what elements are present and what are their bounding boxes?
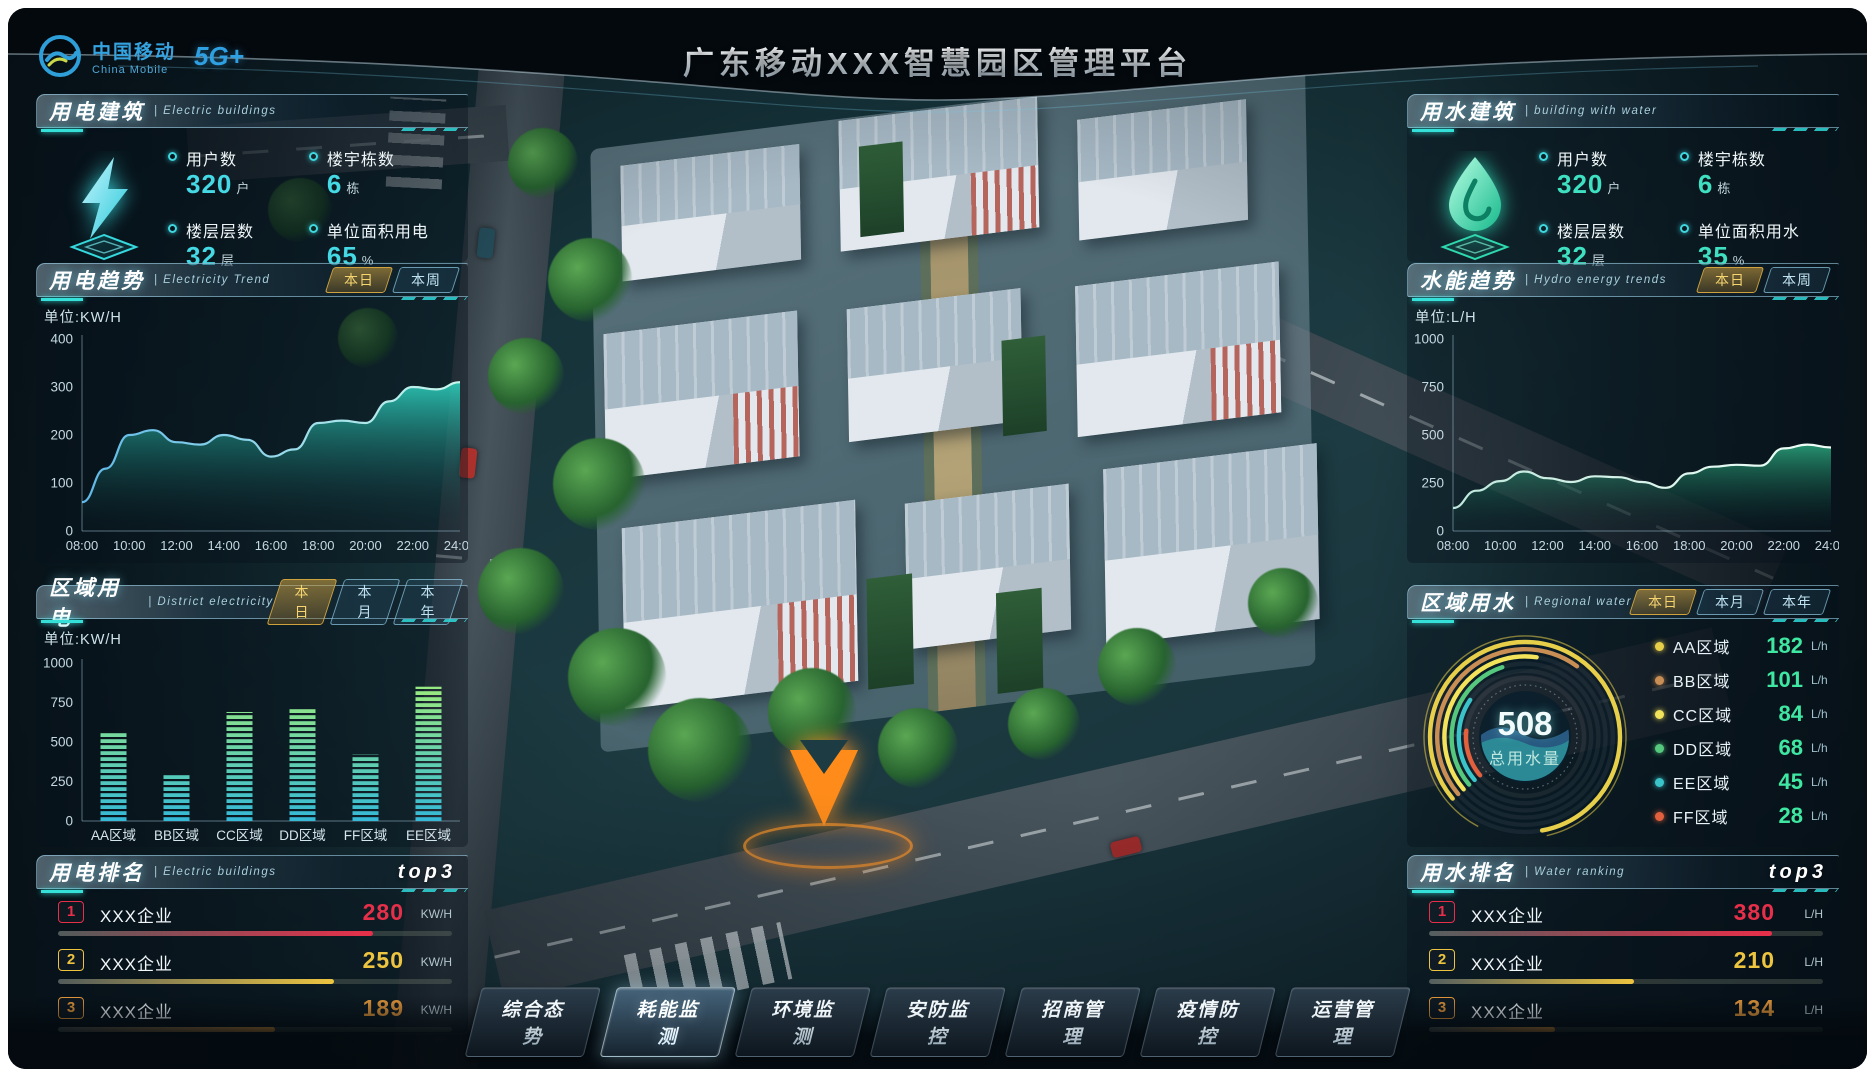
- legend-name: EE区域: [1673, 770, 1751, 794]
- panel-regional-water: 区域用水 | Regional water 本日本月本年 508 总用水量 AA…: [1407, 585, 1839, 847]
- svg-text:200: 200: [50, 428, 73, 443]
- svg-text:10:00: 10:00: [1484, 538, 1517, 553]
- panel-header: 区域用电 | District electricity 本日本月本年: [36, 585, 468, 619]
- panel-header: 区域用水 | Regional water 本日本月本年: [1407, 585, 1839, 619]
- legend-dot-icon: [1655, 778, 1664, 787]
- svg-text:12:00: 12:00: [160, 538, 193, 553]
- panel-header: 用电建筑 | Electric buildings: [36, 94, 468, 128]
- total-water-label: 总用水量: [1465, 745, 1585, 769]
- panel-header: 用电趋势 | Electricity Trend 本日本周: [36, 263, 468, 297]
- stat-grid: 用户数 320户 楼宇栋数 6栋 楼层层数 32层 单位面积用水 35%: [1539, 142, 1835, 272]
- time-range-tab[interactable]: 本月: [329, 579, 400, 625]
- donut-center: 508 总用水量: [1465, 705, 1585, 769]
- top3-badge: top3: [398, 861, 456, 884]
- panel-electric-ranking: 用电排名 | Electric buildings top3 1 XXX企业 2…: [36, 855, 468, 1033]
- svg-text:CC区域: CC区域: [216, 828, 263, 843]
- legend-dot-icon: [1655, 744, 1664, 753]
- svg-text:16:00: 16:00: [1626, 538, 1659, 553]
- panel-subtitle: | District electricity: [148, 596, 273, 608]
- ranking-row: 3 XXX企业 189 KW/H: [48, 997, 456, 1039]
- rank-value: 134: [1734, 995, 1775, 1022]
- legend-name: FF区域: [1673, 804, 1751, 828]
- nav-item[interactable]: 安防监控: [869, 987, 1006, 1057]
- legend-value: 84: [1751, 701, 1803, 727]
- rank-badge: 3: [1429, 997, 1455, 1019]
- stat-item: 楼宇栋数 6栋: [309, 146, 464, 200]
- ranking-list: 1 XXX企业 280 KW/H 2 XXX企业 250 KW/H 3 XXX: [36, 889, 468, 1051]
- rank-progress-track: [1429, 979, 1823, 984]
- svg-text:08:00: 08:00: [1437, 538, 1470, 553]
- nav-item[interactable]: 环境监测: [734, 987, 871, 1057]
- panel-header: 用电排名 | Electric buildings top3: [36, 855, 468, 889]
- svg-text:AA区域: AA区域: [91, 828, 136, 843]
- bullet-icon: [1539, 224, 1548, 233]
- svg-text:750: 750: [50, 695, 73, 710]
- svg-text:1000: 1000: [1414, 332, 1444, 347]
- svg-text:1000: 1000: [43, 656, 73, 671]
- legend-item: BB区域 101 L/h: [1655, 663, 1833, 697]
- stat-value: 6栋: [1698, 170, 1766, 200]
- time-range-tabs: 本日本周: [1700, 267, 1827, 293]
- rank-progress-track: [58, 931, 452, 936]
- bullet-icon: [1680, 152, 1689, 161]
- rank-value: 189: [363, 995, 404, 1022]
- bullet-icon: [1539, 152, 1548, 161]
- panel-subtitle: | Regional water: [1525, 596, 1632, 608]
- time-range-tabs: 本日本月本年: [1633, 589, 1827, 615]
- stat-grid: 用户数 320户 楼宇栋数 6栋 楼层层数 32层 单位面积用电 65%: [168, 142, 464, 272]
- legend-item: EE区域 45 L/h: [1655, 765, 1833, 799]
- stat-label: 用户数: [1557, 146, 1621, 170]
- time-range-tab[interactable]: 本周: [392, 267, 460, 293]
- panel-subtitle: | building with water: [1525, 105, 1657, 117]
- water-usage-legend: AA区域 182 L/h BB区域 101 L/h CC区域 84 L/h DD…: [1655, 629, 1833, 833]
- panel-subtitle: | Electric buildings: [154, 866, 276, 878]
- rank-badge: 1: [1429, 901, 1455, 923]
- svg-text:300: 300: [50, 380, 73, 395]
- panel-header: 水能趋势 | Hydro energy trends 本日本周: [1407, 263, 1839, 297]
- ranking-list: 1 XXX企业 380 L/H 2 XXX企业 210 L/H 3 XXX企业: [1407, 889, 1839, 1051]
- company-name: XXX企业: [1471, 902, 1544, 927]
- total-water-value: 508: [1465, 705, 1585, 743]
- legend-value: 45: [1751, 769, 1803, 795]
- svg-text:08:00: 08:00: [66, 538, 99, 553]
- svg-text:24:00: 24:00: [444, 538, 468, 553]
- rank-unit: KW/H: [421, 955, 452, 969]
- panel-electric-trend: 用电趋势 | Electricity Trend 本日本周 单位:KW/H 01…: [36, 263, 468, 563]
- rank-progress-track: [1429, 1027, 1823, 1032]
- water-trend-chart: 0250500750100008:0010:0012:0014:0016:001…: [1407, 327, 1839, 564]
- unit-label: 单位:KW/H: [44, 306, 468, 327]
- rank-progress-fill: [58, 1027, 275, 1032]
- stat-item: 用户数 320户: [168, 146, 303, 200]
- stat-value: 320户: [1557, 170, 1621, 200]
- district-electricity-chart: 02505007501000AA区域BB区域CC区域DD区域FF区域EE区域: [36, 649, 468, 854]
- svg-text:12:00: 12:00: [1531, 538, 1564, 553]
- svg-text:750: 750: [1421, 380, 1444, 395]
- china-mobile-logo: 中国移动 China Mobile 5G+: [38, 34, 244, 78]
- ranking-row: 2 XXX企业 210 L/H: [1419, 949, 1827, 991]
- legend-unit: L/h: [1811, 741, 1828, 755]
- svg-text:14:00: 14:00: [207, 538, 240, 553]
- rank-progress-track: [1429, 931, 1823, 936]
- stat-value: 320户: [186, 170, 250, 200]
- panel-subtitle: | Electric buildings: [154, 105, 276, 117]
- svg-text:16:00: 16:00: [255, 538, 288, 553]
- legend-name: AA区域: [1673, 634, 1751, 658]
- nav-item[interactable]: 招商管理: [1004, 987, 1141, 1057]
- time-range-tab[interactable]: 本年: [1763, 589, 1831, 615]
- panel-title: 区域用电: [49, 572, 139, 632]
- water-drop-icon: [1411, 142, 1539, 272]
- svg-text:400: 400: [50, 332, 73, 347]
- rank-value: 210: [1734, 947, 1775, 974]
- legend-value: 182: [1751, 633, 1803, 659]
- svg-text:FF区域: FF区域: [344, 828, 388, 843]
- svg-text:0: 0: [65, 524, 73, 539]
- rank-value: 380: [1734, 899, 1775, 926]
- company-name: XXX企业: [100, 998, 173, 1023]
- svg-text:500: 500: [1421, 428, 1444, 443]
- rank-progress-fill: [1429, 979, 1634, 984]
- stat-label: 楼宇栋数: [1698, 146, 1766, 170]
- svg-text:14:00: 14:00: [1578, 538, 1611, 553]
- svg-text:500: 500: [50, 735, 73, 750]
- legend-unit: L/h: [1811, 639, 1828, 653]
- rank-progress-fill: [58, 979, 334, 984]
- time-range-tab[interactable]: 本月: [1696, 589, 1764, 615]
- legend-name: DD区域: [1673, 736, 1751, 760]
- panel-title: 用水建筑: [1420, 96, 1516, 126]
- rank-badge: 2: [1429, 949, 1455, 971]
- nav-item[interactable]: 综合态势: [464, 987, 601, 1057]
- svg-text:BB区域: BB区域: [154, 828, 199, 843]
- time-range-tab[interactable]: 本日: [1629, 589, 1697, 615]
- china-mobile-logo-icon: [38, 34, 82, 78]
- ranking-row: 1 XXX企业 280 KW/H: [48, 901, 456, 943]
- rank-badge: 3: [58, 997, 84, 1019]
- panel-title: 用水排名: [1420, 857, 1516, 887]
- svg-text:18:00: 18:00: [302, 538, 335, 553]
- legend-dot-icon: [1655, 812, 1664, 821]
- rank-progress-fill: [1429, 931, 1772, 936]
- panel-title: 水能趋势: [1420, 265, 1516, 295]
- rank-unit: L/H: [1804, 907, 1823, 921]
- company-name: XXX企业: [100, 902, 173, 927]
- rank-badge: 1: [58, 901, 84, 923]
- time-range-tab[interactable]: 本年: [392, 579, 463, 625]
- svg-text:18:00: 18:00: [1673, 538, 1706, 553]
- dashboard-root: 中国移动 China Mobile 5G+ 广东移动XXX智慧园区管理平台 用电…: [8, 8, 1867, 1069]
- legend-unit: L/h: [1811, 775, 1828, 789]
- nav-item[interactable]: 运营管理: [1274, 987, 1411, 1057]
- svg-text:250: 250: [50, 774, 73, 789]
- svg-text:250: 250: [1421, 476, 1444, 491]
- svg-text:EE区域: EE区域: [406, 828, 451, 843]
- svg-text:20:00: 20:00: [349, 538, 382, 553]
- logo-text-en: China Mobile: [92, 64, 176, 76]
- top3-badge: top3: [1769, 861, 1827, 884]
- svg-text:24:00: 24:00: [1815, 538, 1839, 553]
- ranking-row: 3 XXX企业 134 L/H: [1419, 997, 1827, 1039]
- rank-progress-track: [58, 1027, 452, 1032]
- stat-label: 楼层层数: [186, 218, 254, 242]
- stat-label: 单位面积用电: [327, 218, 429, 242]
- bullet-icon: [1680, 224, 1689, 233]
- company-name: XXX企业: [1471, 998, 1544, 1023]
- stat-value: 6栋: [327, 170, 395, 200]
- unit-label: 单位:L/H: [1415, 306, 1839, 327]
- panel-subtitle: | Electricity Trend: [154, 274, 270, 286]
- panel-title: 用电趋势: [49, 265, 145, 295]
- bullet-icon: [168, 152, 177, 161]
- panel-header: 用水排名 | Water ranking top3: [1407, 855, 1839, 889]
- stat-item: 用户数 320户: [1539, 146, 1674, 200]
- legend-unit: L/h: [1811, 707, 1828, 721]
- rank-progress-fill: [58, 931, 373, 936]
- legend-unit: L/h: [1811, 809, 1828, 823]
- legend-dot-icon: [1655, 642, 1664, 651]
- panel-title: 区域用水: [1420, 587, 1516, 617]
- svg-text:0: 0: [1436, 524, 1444, 539]
- company-name: XXX企业: [1471, 950, 1544, 975]
- svg-text:100: 100: [50, 476, 73, 491]
- svg-text:22:00: 22:00: [396, 538, 429, 553]
- rank-badge: 2: [58, 949, 84, 971]
- time-range-tab[interactable]: 本周: [1763, 267, 1831, 293]
- legend-unit: L/h: [1811, 673, 1828, 687]
- panel-water-trend: 水能趋势 | Hydro energy trends 本日本周 单位:L/H 0…: [1407, 263, 1839, 563]
- legend-name: CC区域: [1673, 702, 1751, 726]
- nav-item[interactable]: 疫情防控: [1139, 987, 1276, 1057]
- ranking-row: 2 XXX企业 250 KW/H: [48, 949, 456, 991]
- legend-dot-icon: [1655, 710, 1664, 719]
- time-range-tab[interactable]: 本日: [266, 579, 337, 625]
- rank-unit: KW/H: [421, 1003, 452, 1017]
- time-range-tab[interactable]: 本日: [1696, 267, 1764, 293]
- panel-title: 用电建筑: [49, 96, 145, 126]
- panel-subtitle: | Hydro energy trends: [1525, 274, 1667, 286]
- legend-item: AA区域 182 L/h: [1655, 629, 1833, 663]
- panel-water-ranking: 用水排名 | Water ranking top3 1 XXX企业 380 L/…: [1407, 855, 1839, 1033]
- stat-label: 用户数: [186, 146, 250, 170]
- legend-item: CC区域 84 L/h: [1655, 697, 1833, 731]
- svg-text:22:00: 22:00: [1767, 538, 1800, 553]
- rank-progress-track: [58, 979, 452, 984]
- page-title: 广东移动XXX智慧园区管理平台: [683, 38, 1192, 83]
- stat-label: 单位面积用水: [1698, 218, 1800, 242]
- bullet-icon: [309, 224, 318, 233]
- ranking-row: 1 XXX企业 380 L/H: [1419, 901, 1827, 943]
- panel-electric-building: 用电建筑 | Electric buildings 用户数 320户: [36, 94, 468, 262]
- rank-value: 280: [363, 899, 404, 926]
- time-range-tabs: 本日本周: [329, 267, 456, 293]
- panel-title: 用电排名: [49, 857, 145, 887]
- panel-header: 用水建筑 | building with water: [1407, 94, 1839, 128]
- stat-item: 楼宇栋数 6栋: [1680, 146, 1835, 200]
- rank-value: 250: [363, 947, 404, 974]
- time-range-tab[interactable]: 本日: [325, 267, 393, 293]
- panel-district-electricity: 区域用电 | District electricity 本日本月本年 单位:KW…: [36, 585, 468, 847]
- svg-text:10:00: 10:00: [113, 538, 146, 553]
- stat-label: 楼层层数: [1557, 218, 1625, 242]
- nav-item[interactable]: 耗能监测: [599, 987, 736, 1057]
- panel-water-building: 用水建筑 | building with water 用户数 320户: [1407, 94, 1839, 262]
- stat-label: 楼宇栋数: [327, 146, 395, 170]
- logo-5g-badge: 5G+: [194, 41, 244, 72]
- bullet-icon: [168, 224, 177, 233]
- panel-subtitle: | Water ranking: [1525, 866, 1625, 878]
- legend-value: 101: [1751, 667, 1803, 693]
- electricity-trend-chart: 010020030040008:0010:0012:0014:0016:0018…: [36, 327, 468, 564]
- svg-text:20:00: 20:00: [1720, 538, 1753, 553]
- rank-unit: L/H: [1804, 955, 1823, 969]
- legend-value: 68: [1751, 735, 1803, 761]
- company-name: XXX企业: [100, 950, 173, 975]
- svg-text:DD区域: DD区域: [279, 828, 326, 843]
- rank-progress-fill: [1429, 1027, 1555, 1032]
- legend-value: 28: [1751, 803, 1803, 829]
- legend-dot-icon: [1655, 676, 1664, 685]
- svg-text:0: 0: [65, 814, 73, 829]
- bullet-icon: [309, 152, 318, 161]
- water-usage-donut-chart: 508 总用水量: [1419, 631, 1631, 843]
- legend-name: BB区域: [1673, 668, 1751, 692]
- lightning-icon: [40, 142, 168, 272]
- bottom-nav: 综合态势耗能监测环境监测安防监控招商管理疫情防控运营管理: [473, 987, 1403, 1057]
- legend-item: DD区域 68 L/h: [1655, 731, 1833, 765]
- time-range-tabs: 本日本月本年: [274, 579, 456, 625]
- legend-item: FF区域 28 L/h: [1655, 799, 1833, 833]
- rank-unit: L/H: [1804, 1003, 1823, 1017]
- logo-text-cn: 中国移动: [92, 37, 176, 64]
- rank-unit: KW/H: [421, 907, 452, 921]
